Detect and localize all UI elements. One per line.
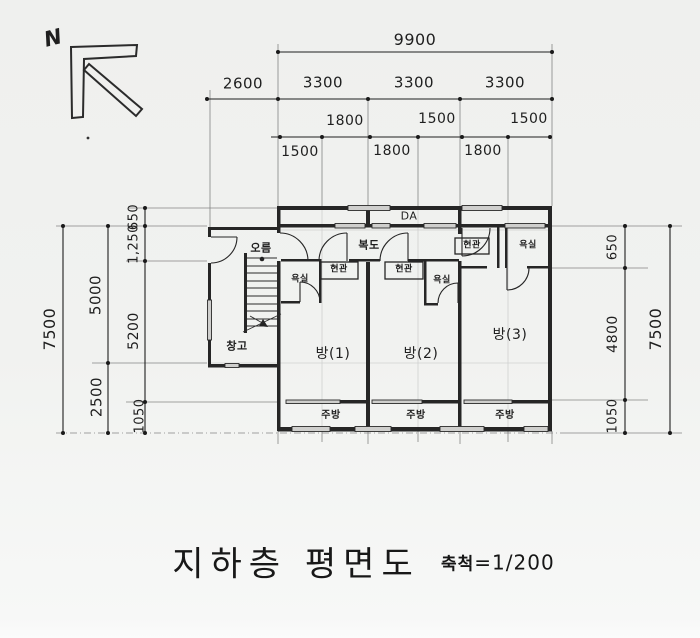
dim-sub-lower-2: 1800 xyxy=(464,144,502,158)
room-label-kitchen-1: 주방 xyxy=(321,411,340,421)
dim-bay-3: 3300 xyxy=(485,76,525,91)
dim-bay-1: 3300 xyxy=(303,76,343,91)
dim-left-inner-1: 1,250 xyxy=(128,224,141,264)
room-label-entrance-1: 현관 xyxy=(330,266,348,275)
dim-right-inner-2: 1050 xyxy=(607,398,620,433)
dim-left-inner-2: 5200 xyxy=(127,312,141,350)
dim-sub-upper-2: 1500 xyxy=(510,112,548,126)
dim-left-middle-1: 2500 xyxy=(90,377,105,417)
room-label-duct: DA xyxy=(401,211,418,222)
dim-bay-2: 3300 xyxy=(394,76,434,91)
north-arrow-icon xyxy=(71,45,142,139)
dim-left-inner-3: 1050 xyxy=(134,398,147,433)
floorplan-sheet: N 9900 2600 3300 3300 3300 1800 1500 150… xyxy=(0,0,700,638)
room-label-kitchen-2: 주방 xyxy=(406,411,425,421)
room-label-stair-hall: 오름 xyxy=(250,243,271,254)
room-label-bedroom-1: 방(1) xyxy=(316,347,351,361)
dim-sub-lower-0: 1500 xyxy=(281,145,319,159)
scale-label: 축척 xyxy=(441,549,474,574)
page-title: 지하층 평면도 xyxy=(172,537,420,586)
room-label-kitchen-3: 주방 xyxy=(495,411,514,421)
dim-bay-0: 2600 xyxy=(223,77,263,92)
room-label-corridor: 복도 xyxy=(358,240,379,251)
room-label-bath-3: 욕실 xyxy=(519,242,537,251)
scale-value: =1/200 xyxy=(474,550,554,574)
room-label-entrance-2: 현관 xyxy=(395,266,413,275)
room-label-bedroom-3: 방(3) xyxy=(493,328,528,342)
dim-sub-upper-0: 1800 xyxy=(326,114,364,128)
room-label-bath-2: 욕실 xyxy=(433,277,451,286)
dim-left-middle-0: 5000 xyxy=(89,275,104,315)
room-label-storage: 창고 xyxy=(226,341,247,352)
scale-note: 축척 =1/200 xyxy=(441,549,555,574)
room-label-bedroom-2: 방(2) xyxy=(404,347,439,361)
staircase xyxy=(243,257,281,332)
dim-right-outer: 7500 xyxy=(648,308,664,351)
room-label-bath-1: 욕실 xyxy=(291,276,309,285)
dim-top-total: 9900 xyxy=(394,32,437,48)
room-label-entrance-3: 현관 xyxy=(463,242,481,251)
dim-sub-upper-1: 1500 xyxy=(418,112,456,126)
dim-right-inner-1: 4800 xyxy=(606,315,620,353)
dim-left-outer: 7500 xyxy=(42,308,58,351)
dim-sub-lower-1: 1800 xyxy=(373,144,411,158)
dim-right-inner-0: 650 xyxy=(607,234,620,260)
